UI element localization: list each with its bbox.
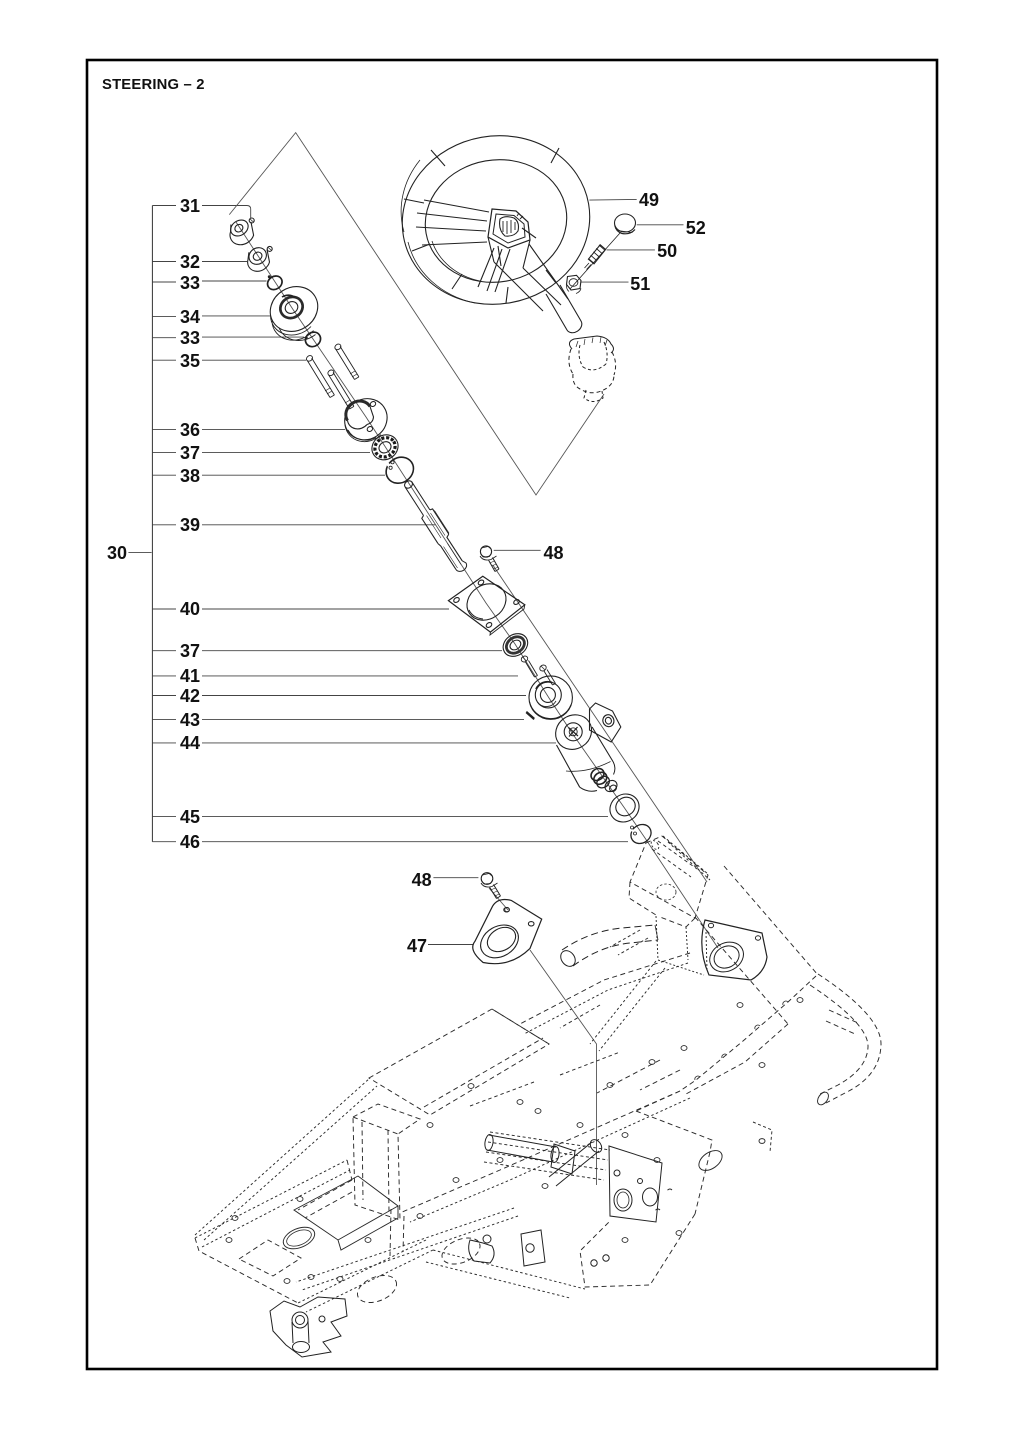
svg-text:36: 36 (180, 420, 200, 440)
svg-text:46: 46 (180, 832, 200, 852)
svg-text:44: 44 (180, 733, 200, 753)
svg-text:38: 38 (180, 466, 200, 486)
svg-text:39: 39 (180, 515, 200, 535)
svg-text:45: 45 (180, 807, 200, 827)
svg-text:32: 32 (180, 252, 200, 272)
svg-text:41: 41 (180, 666, 200, 686)
svg-text:30: 30 (107, 543, 127, 563)
svg-text:34: 34 (180, 307, 200, 327)
svg-text:35: 35 (180, 351, 200, 371)
svg-text:43: 43 (180, 710, 200, 730)
svg-text:52: 52 (686, 218, 706, 238)
svg-text:37: 37 (180, 641, 200, 661)
svg-text:50: 50 (657, 241, 677, 261)
svg-text:33: 33 (180, 273, 200, 293)
svg-text:49: 49 (639, 190, 659, 210)
svg-text:33: 33 (180, 328, 200, 348)
svg-text:42: 42 (180, 686, 200, 706)
svg-text:31: 31 (180, 196, 200, 216)
svg-text:51: 51 (630, 274, 650, 294)
svg-text:STEERING – 2: STEERING – 2 (102, 77, 205, 93)
svg-text:37: 37 (180, 443, 200, 463)
svg-text:48: 48 (412, 870, 432, 890)
svg-text:40: 40 (180, 599, 200, 619)
svg-text:47: 47 (407, 936, 427, 956)
svg-text:48: 48 (544, 543, 564, 563)
